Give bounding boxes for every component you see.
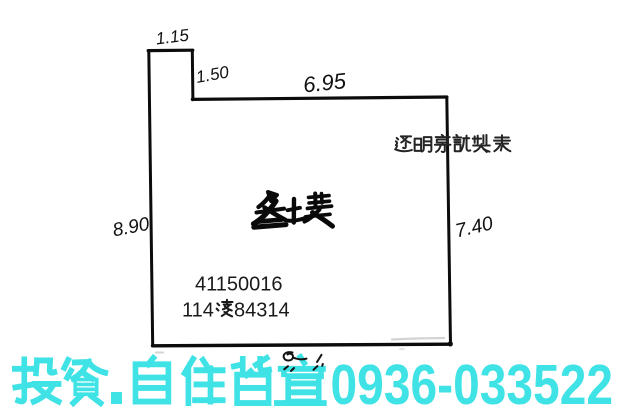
svg-text:1.50: 1.50 [194, 62, 230, 87]
svg-text:1.15: 1.15 [155, 26, 191, 49]
svg-text:8.90: 8.90 [111, 214, 152, 242]
svg-text:7.40: 7.40 [453, 212, 495, 242]
svg-text:6.95: 6.95 [302, 68, 348, 97]
svg-text:84314: 84314 [234, 300, 290, 322]
svg-text:0936-033522: 0936-033522 [331, 353, 614, 413]
svg-text:114: 114 [182, 300, 214, 322]
svg-text:41150016: 41150016 [195, 274, 283, 296]
